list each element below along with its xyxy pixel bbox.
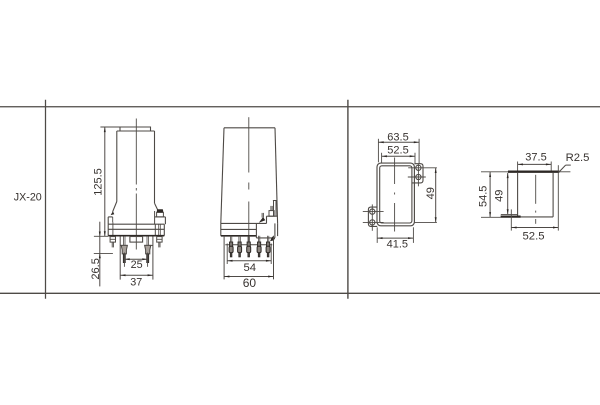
svg-text:52.5: 52.5 (523, 230, 545, 242)
svg-text:37: 37 (130, 276, 142, 288)
svg-text:R2.5: R2.5 (566, 152, 590, 164)
svg-text:41.5: 41.5 (387, 239, 408, 251)
svg-text:60: 60 (243, 276, 257, 290)
svg-text:26.5: 26.5 (90, 258, 102, 279)
svg-text:25: 25 (131, 259, 143, 271)
svg-text:125.5: 125.5 (92, 168, 104, 196)
svg-text:54.5: 54.5 (477, 186, 489, 207)
svg-text:49: 49 (493, 190, 505, 202)
svg-text:52.5: 52.5 (387, 145, 408, 157)
svg-text:JX-20: JX-20 (14, 192, 42, 204)
svg-text:54: 54 (244, 262, 257, 274)
svg-text:63.5: 63.5 (387, 131, 408, 143)
svg-text:37.5: 37.5 (525, 151, 546, 163)
svg-text:49: 49 (425, 187, 437, 199)
